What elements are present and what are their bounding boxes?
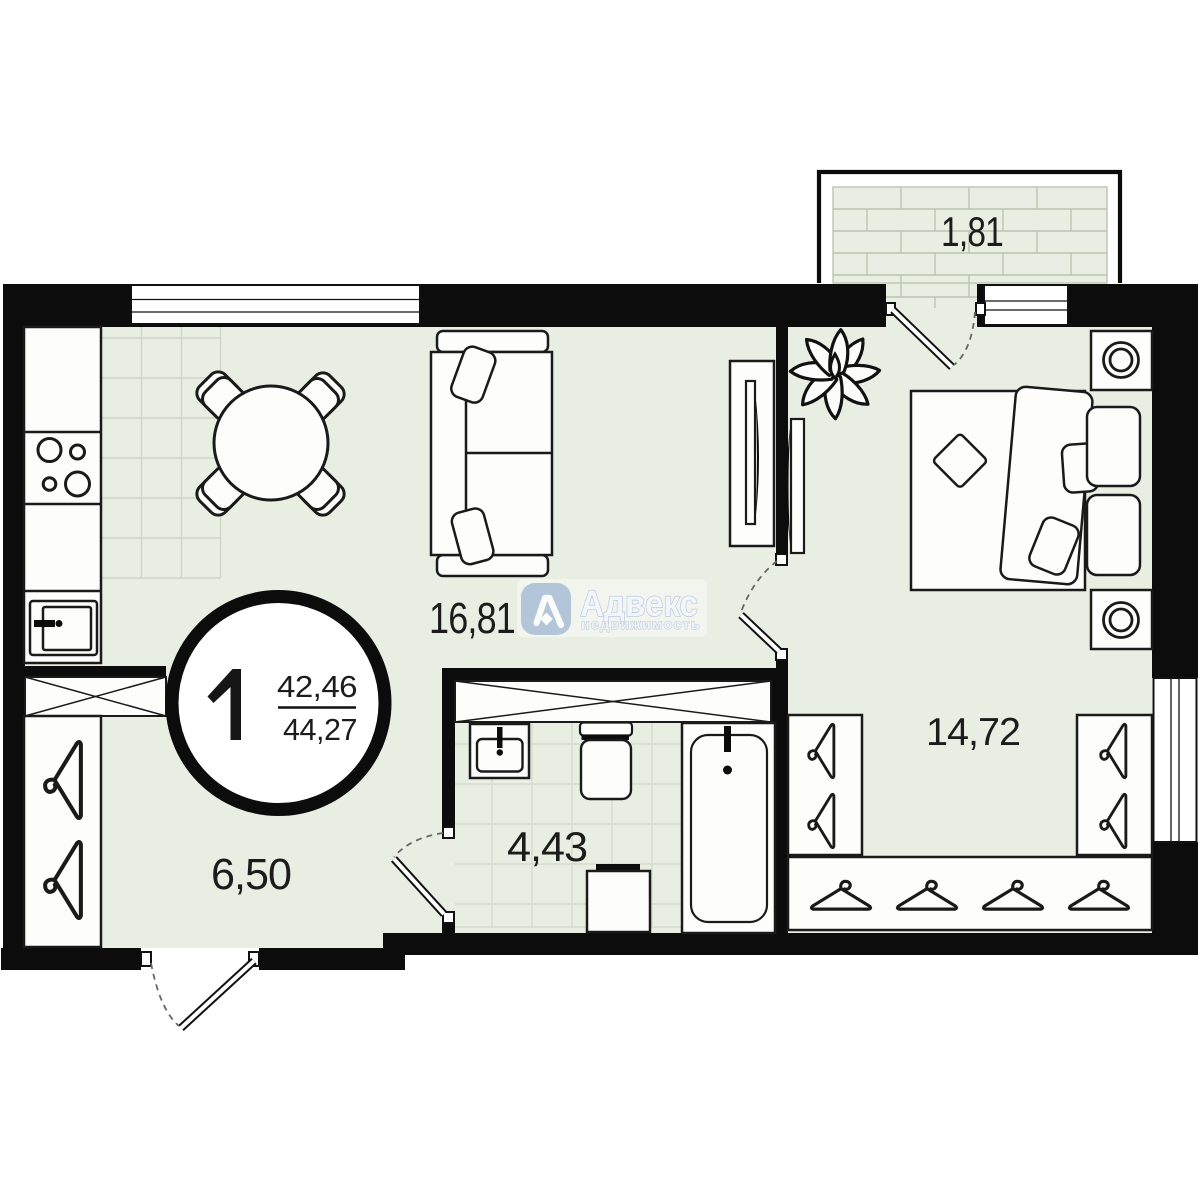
svg-text:6,50: 6,50 (211, 850, 291, 899)
svg-text:16,81: 16,81 (429, 594, 515, 643)
svg-text:44,27: 44,27 (283, 712, 357, 747)
svg-text:1,81: 1,81 (941, 208, 1003, 255)
svg-text:недвижимость: недвижимость (581, 617, 701, 632)
svg-text:42,46: 42,46 (277, 669, 357, 704)
svg-text:4,43: 4,43 (507, 823, 587, 870)
svg-text:14,72: 14,72 (926, 711, 1020, 754)
